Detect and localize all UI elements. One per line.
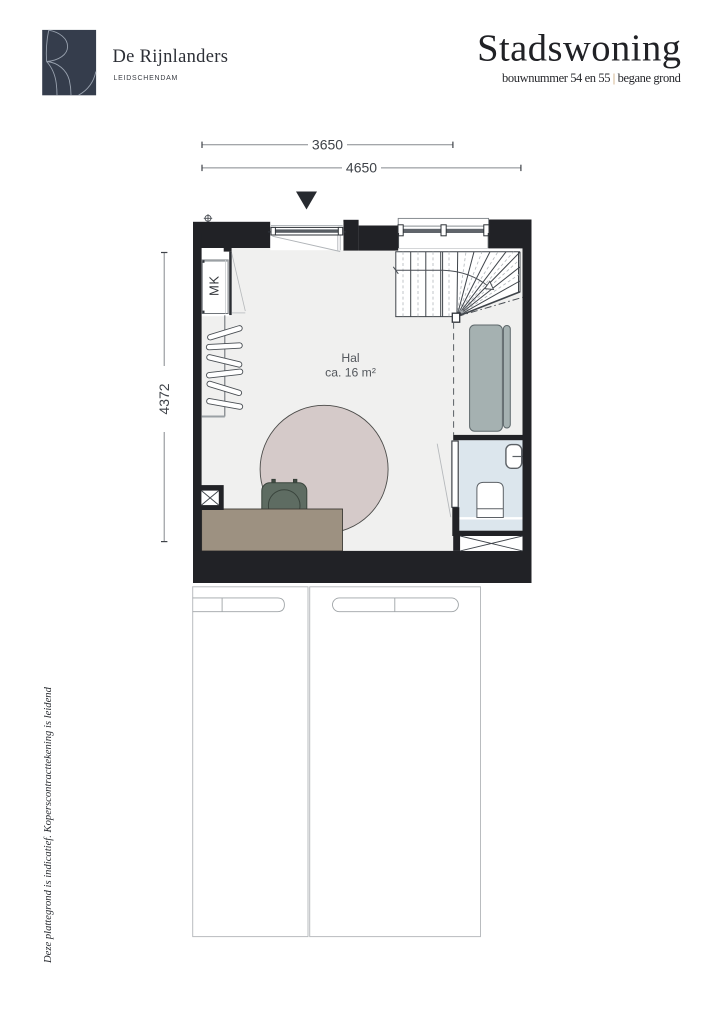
svg-text:MK: MK [206, 275, 221, 296]
svg-text:ca. 16 m²: ca. 16 m² [325, 366, 376, 380]
svg-text:bouwnummer 54 en 55 | begane: bouwnummer 54 en 55 | begane grond [502, 71, 682, 85]
svg-text:4372: 4372 [156, 383, 172, 414]
svg-text:Stadswoning: Stadswoning [477, 28, 681, 70]
svg-text:3650: 3650 [312, 137, 343, 153]
svg-text:Hal: Hal [341, 351, 359, 365]
svg-text:De Rijnlanders: De Rijnlanders [113, 47, 229, 67]
svg-text:Deze plattegrond is indicatief: Deze plattegrond is indicatief. Kopersco… [43, 686, 54, 964]
svg-text:4650: 4650 [346, 160, 377, 176]
svg-text:LEIDSCHENDAM: LEIDSCHENDAM [114, 75, 179, 82]
